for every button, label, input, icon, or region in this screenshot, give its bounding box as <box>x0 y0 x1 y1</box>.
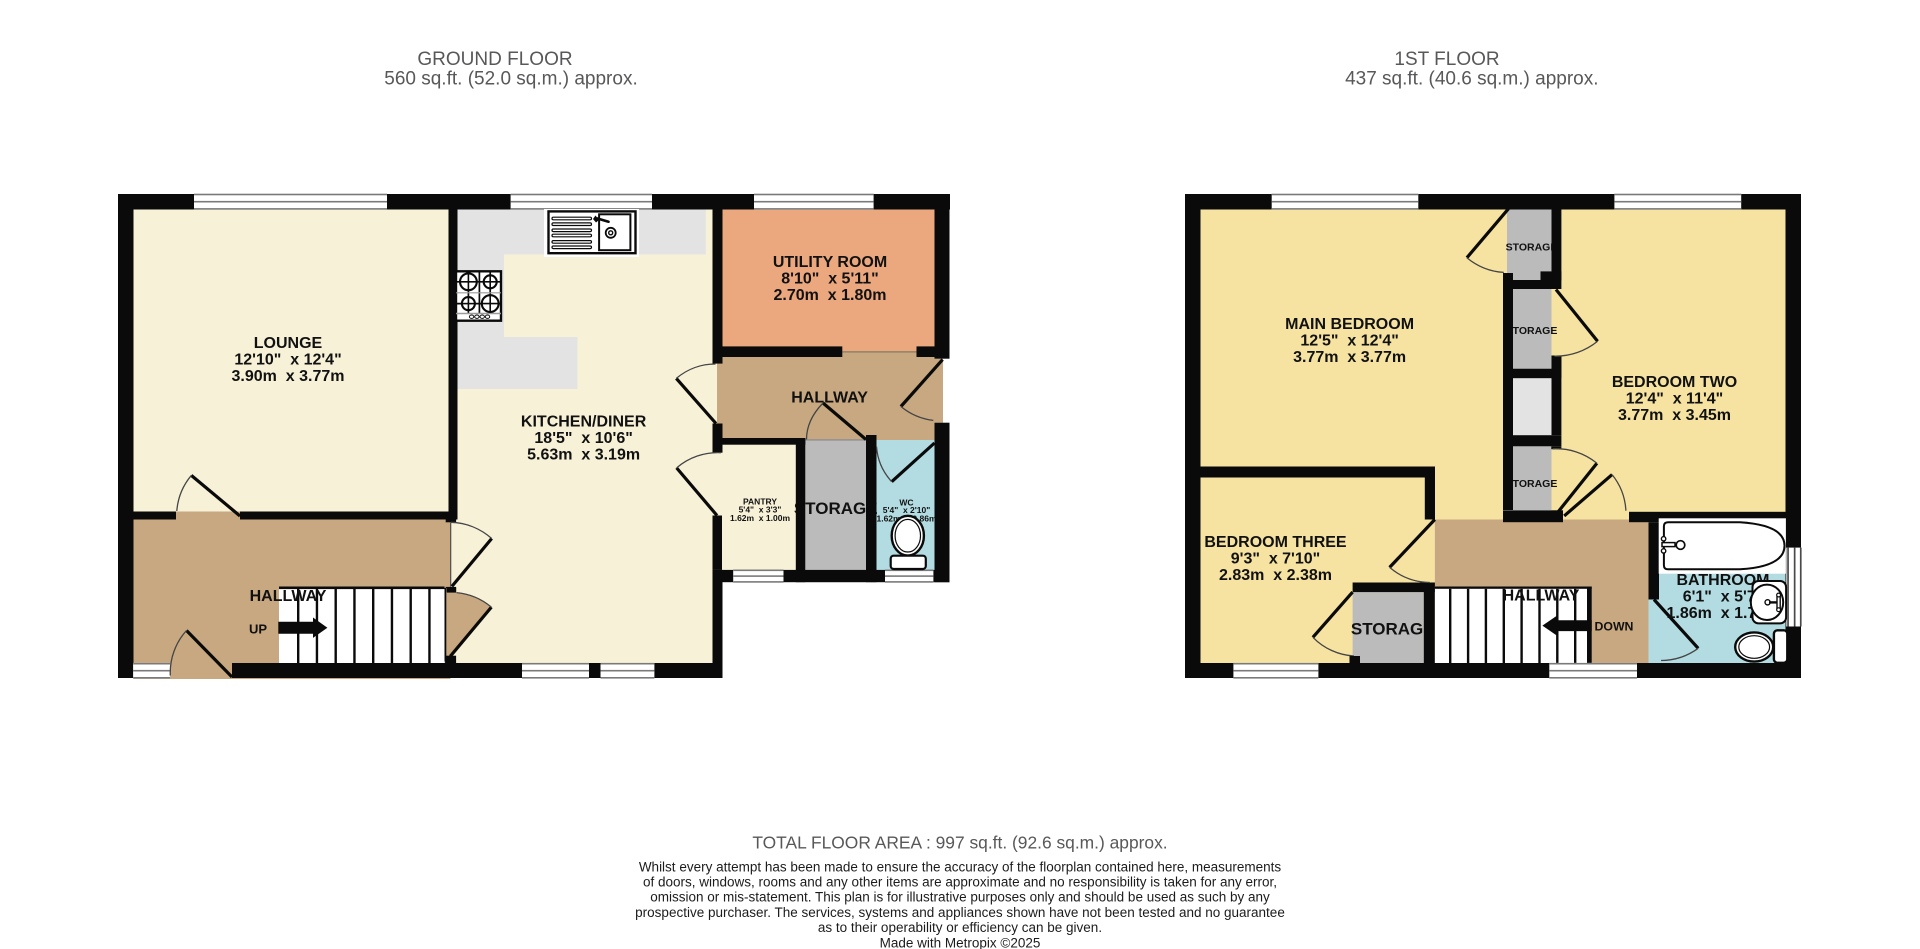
svg-text:LOUNGE: LOUNGE <box>254 335 323 352</box>
svg-text:DOWN: DOWN <box>1595 620 1634 634</box>
svg-text:HALLWAY: HALLWAY <box>1503 587 1580 604</box>
svg-text:STORAGE: STORAGE <box>1351 620 1435 639</box>
svg-text:STORAGE: STORAGE <box>1506 478 1558 490</box>
svg-text:STORAGE: STORAGE <box>794 499 878 518</box>
svg-text:3.77m x 3.77m: 3.77m x 3.77m <box>1293 349 1406 366</box>
svg-text:12'4" x 11'4": 12'4" x 11'4" <box>1626 391 1724 408</box>
svg-text:9'3" x 7'10": 9'3" x 7'10" <box>1231 551 1321 568</box>
svg-text:BEDROOM THREE: BEDROOM THREE <box>1204 534 1347 551</box>
svg-text:as to their operability or eff: as to their operability or efficiency ca… <box>818 920 1102 935</box>
svg-text:KITCHEN/DINER: KITCHEN/DINER <box>521 414 647 431</box>
svg-text:8'10" x 5'11": 8'10" x 5'11" <box>781 271 879 288</box>
svg-text:3.90m x 3.77m: 3.90m x 3.77m <box>232 368 345 385</box>
svg-text:prospective purchaser. The ser: prospective purchaser. The services, sys… <box>635 905 1285 920</box>
svg-text:Whilst every attempt has been: Whilst every attempt has been made to en… <box>639 859 1282 874</box>
svg-text:560 sq.ft. (52.0 sq.m.) approx: 560 sq.ft. (52.0 sq.m.) approx. <box>384 69 637 90</box>
svg-text:HALLWAY: HALLWAY <box>791 389 868 406</box>
svg-text:5.63m x 3.19m: 5.63m x 3.19m <box>527 447 640 464</box>
svg-text:18'5" x 10'6": 18'5" x 10'6" <box>534 430 632 447</box>
svg-text:Made with Metropix ©2025: Made with Metropix ©2025 <box>880 935 1041 949</box>
svg-text:omission or mis-statement. Thi: omission or mis-statement. This plan is … <box>650 890 1270 905</box>
svg-text:12'5" x 12'4": 12'5" x 12'4" <box>1300 333 1398 350</box>
svg-text:2.83m x 2.38m: 2.83m x 2.38m <box>1219 567 1332 584</box>
svg-text:STORAGE: STORAGE <box>1506 242 1558 254</box>
svg-text:TOTAL FLOOR AREA : 997 sq.ft.: TOTAL FLOOR AREA : 997 sq.ft. (92.6 sq.m… <box>752 833 1167 853</box>
svg-text:BEDROOM TWO: BEDROOM TWO <box>1612 374 1737 391</box>
svg-text:HALLWAY: HALLWAY <box>250 588 327 605</box>
svg-text:1ST FLOOR: 1ST FLOOR <box>1394 49 1499 70</box>
svg-text:of doors, windows, rooms and a: of doors, windows, rooms and any other i… <box>643 875 1277 890</box>
svg-text:MAIN BEDROOM: MAIN BEDROOM <box>1285 316 1414 333</box>
svg-text:3.77m x 3.45m: 3.77m x 3.45m <box>1618 407 1731 424</box>
svg-text:UTILITY ROOM: UTILITY ROOM <box>773 254 887 271</box>
svg-text:GROUND FLOOR: GROUND FLOOR <box>417 49 572 70</box>
svg-text:1.62m x 1.00m: 1.62m x 1.00m <box>730 513 790 523</box>
svg-text:437 sq.ft. (40.6 sq.m.) approx: 437 sq.ft. (40.6 sq.m.) approx. <box>1345 69 1598 90</box>
svg-text:2.70m x 1.80m: 2.70m x 1.80m <box>774 287 887 304</box>
svg-text:STORAGE: STORAGE <box>1506 325 1558 337</box>
svg-text:UP: UP <box>249 622 267 637</box>
svg-text:12'10" x 12'4": 12'10" x 12'4" <box>234 352 341 369</box>
